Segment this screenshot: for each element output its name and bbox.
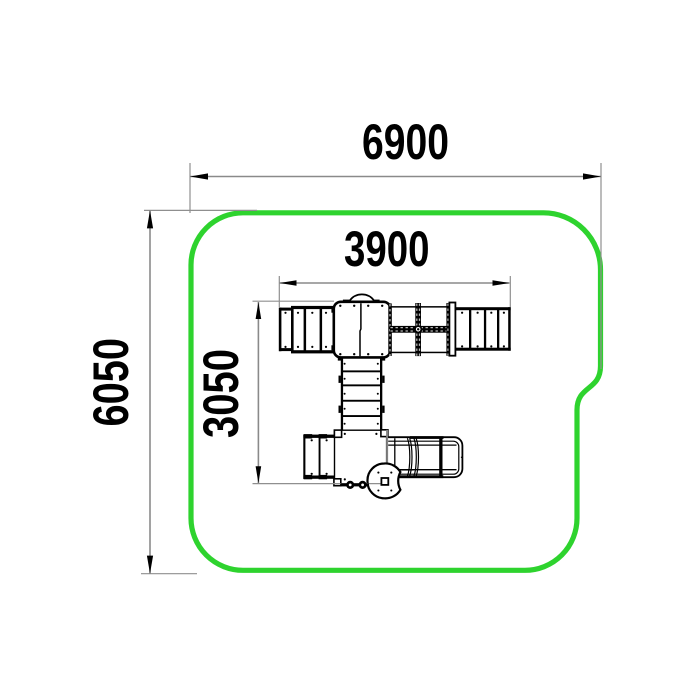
svg-text:3050: 3050	[193, 349, 249, 438]
svg-text:6050: 6050	[83, 338, 139, 427]
svg-text:3900: 3900	[344, 221, 430, 277]
svg-text:6900: 6900	[362, 114, 449, 170]
